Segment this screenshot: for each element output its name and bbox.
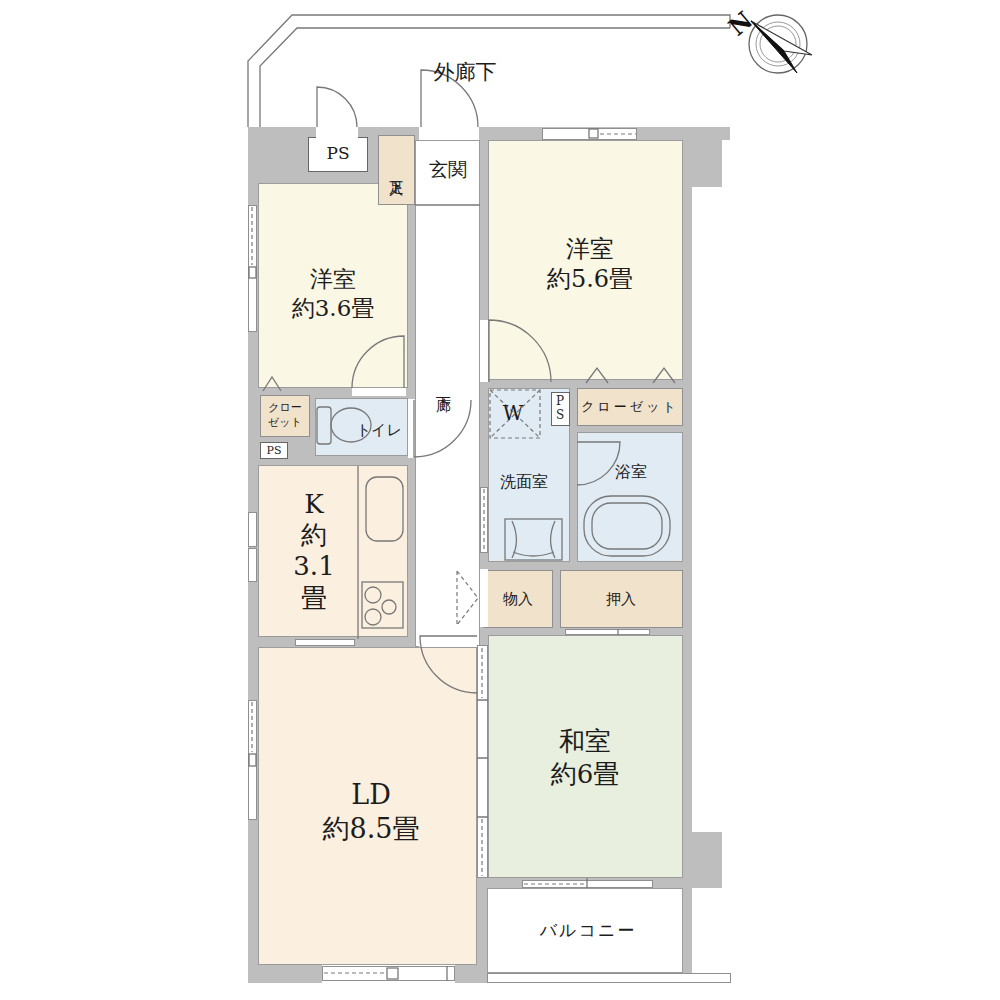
- gap-storage-door: [480, 569, 488, 627]
- compass-north-label: N: [723, 5, 758, 41]
- label-washer: W: [503, 401, 524, 426]
- compass-ring-mid: [756, 22, 800, 66]
- fusuma-futon-closet: [565, 629, 650, 635]
- label-closet-left: クロー ゼット: [268, 400, 302, 431]
- label-japanese: 和室 約6畳: [551, 725, 620, 790]
- gap-entrance-door: [419, 127, 479, 140]
- compass: N: [723, 5, 812, 73]
- balcony-railing-bottom: [487, 973, 731, 983]
- label-washroom: 洗面室: [500, 472, 548, 492]
- label-western-b-size: 約5.6畳: [547, 264, 633, 294]
- label-exterior-corridor: 外廊下: [434, 59, 497, 85]
- label-closet-left-line2: ゼット: [268, 415, 302, 430]
- gap-western-a-door: [352, 388, 406, 396]
- compass-needle-white: [751, 21, 812, 55]
- window-kitchen-left-1: [248, 512, 257, 547]
- window-kitchen-left-2: [248, 548, 257, 582]
- label-japanese-size: 約6畳: [551, 757, 620, 790]
- label-futon-closet: 押入: [606, 590, 636, 609]
- room-entrance-corridor: [415, 140, 480, 647]
- compass-ring-outer: [749, 15, 807, 73]
- window-ld-left: [248, 700, 257, 820]
- label-ld-name: LD: [323, 778, 420, 812]
- label-ps-right-p: P: [556, 395, 564, 409]
- window-ld-bottom: [322, 966, 455, 981]
- opening-kitchen-ld: [295, 639, 355, 646]
- label-balcony: バルコニー: [540, 920, 637, 941]
- label-entrance: 玄関: [429, 158, 467, 182]
- sliding-partition-ld-japanese: [477, 645, 488, 878]
- label-japanese-name: 和室: [551, 725, 620, 758]
- window-western-b-top: [542, 128, 637, 140]
- box-shoe-cabinet: [378, 135, 415, 205]
- wall-ld-bottom-right: [455, 965, 487, 983]
- label-western-b: 洋室 約5.6畳: [547, 234, 633, 294]
- window-japanese-bottom: [522, 880, 653, 888]
- label-closet-left-line1: クロー: [268, 400, 302, 415]
- label-pipe-space-right: P S: [556, 395, 564, 423]
- label-storage: 物入: [503, 590, 533, 609]
- room-bathroom: [577, 432, 683, 562]
- floor-plan: N 外廊下 PS 下足入 玄関 洋室 約3.6畳 洋室 約5.6畳 廊下 クロー…: [0, 0, 1000, 1000]
- compass-needle-black: [751, 21, 797, 73]
- label-kitchen-line2: 約: [293, 520, 334, 551]
- sliding-door-washroom: [480, 487, 488, 553]
- label-kitchen-line1: K: [293, 489, 334, 520]
- label-kitchen-line4: 畳: [293, 582, 334, 613]
- label-bathroom: 浴室: [615, 462, 647, 482]
- gap-ld-door: [419, 637, 477, 647]
- label-western-a: 洋室 約3.6畳: [292, 265, 375, 323]
- label-pipe-space-left: PS: [267, 444, 282, 458]
- label-pipe-space-top: PS: [326, 143, 349, 164]
- label-western-b-name: 洋室: [547, 234, 633, 264]
- gap-ps-door: [316, 127, 358, 140]
- compass-ring-inner: [760, 26, 796, 62]
- label-kitchen-line3: 3.1: [293, 551, 334, 582]
- label-ps-right-s: S: [556, 409, 564, 423]
- label-kitchen: K 約 3.1 畳: [293, 489, 334, 614]
- label-western-a-size: 約3.6畳: [292, 294, 375, 323]
- gap-western-b-door: [480, 320, 488, 382]
- label-closet-right: クローゼット: [581, 399, 679, 415]
- label-living-dining: LD 約8.5畳: [323, 778, 420, 846]
- label-toilet: トイレ: [356, 421, 402, 440]
- gap-toilet-door: [408, 399, 415, 458]
- window-western-a-left: [248, 205, 257, 332]
- wall-ld-bottom-left: [248, 965, 322, 983]
- label-ld-size: 約8.5畳: [323, 812, 420, 846]
- ps-door-arc: [317, 87, 357, 127]
- label-western-a-name: 洋室: [292, 265, 375, 294]
